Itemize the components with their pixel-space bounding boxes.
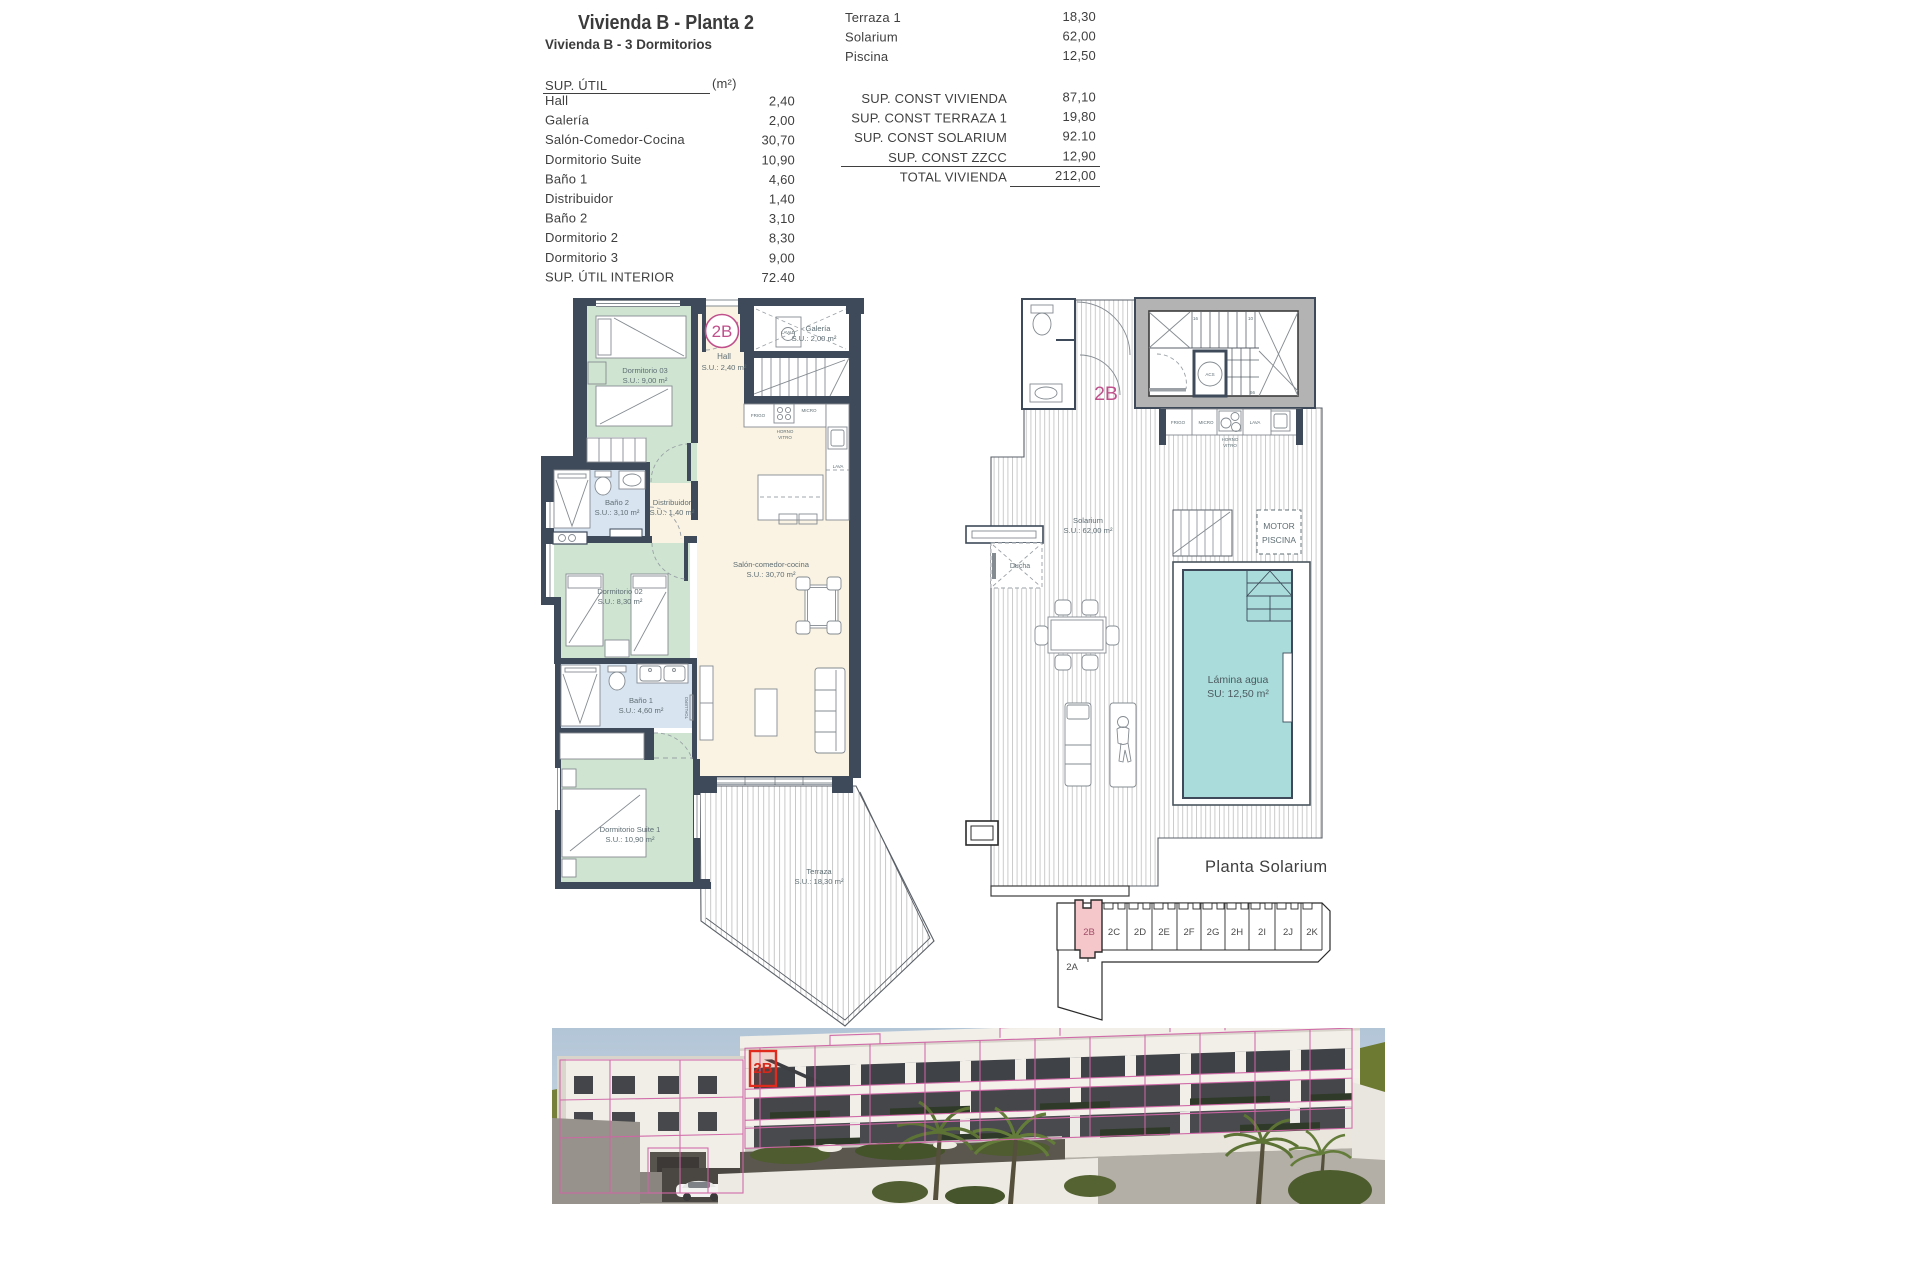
svg-text:Planta Solarium: Planta Solarium: [1205, 858, 1327, 876]
svg-text:2D: 2D: [1134, 927, 1146, 938]
svg-text:Baño 1: Baño 1: [545, 171, 587, 186]
svg-text:2H: 2H: [1231, 927, 1243, 938]
svg-text:10: 10: [1248, 316, 1254, 321]
svg-text:Dormitorio Suite: Dormitorio Suite: [545, 152, 641, 167]
svg-text:TOTAL VIVIENDA: TOTAL VIVIENDA: [900, 169, 1007, 184]
svg-text:TOALLERO: TOALLERO: [684, 696, 689, 719]
svg-text:92.10: 92.10: [1062, 129, 1096, 144]
svg-text:2B: 2B: [1083, 927, 1095, 938]
svg-text:MICRO: MICRO: [802, 408, 817, 413]
svg-text:4,60: 4,60: [769, 172, 795, 187]
svg-text:Distribuidor: Distribuidor: [653, 498, 692, 507]
svg-text:SUP. ÚTIL: SUP. ÚTIL: [545, 78, 607, 93]
svg-text:S.U.: 30,70 m²: S.U.: 30,70 m²: [747, 570, 796, 579]
svg-text:Distribuidor: Distribuidor: [545, 191, 614, 206]
svg-text:12,50: 12,50: [1062, 48, 1096, 63]
svg-text:Hall: Hall: [545, 93, 568, 108]
svg-text:Baño 1: Baño 1: [629, 696, 653, 705]
svg-text:S.U.: 8,30 m²: S.U.: 8,30 m²: [598, 597, 643, 606]
svg-text:FRIGO: FRIGO: [1171, 420, 1186, 425]
svg-text:18,30: 18,30: [1062, 9, 1096, 24]
svg-text:12,90: 12,90: [1062, 148, 1096, 163]
svg-text:Baño 2: Baño 2: [545, 211, 587, 226]
svg-text:FRIGO: FRIGO: [751, 413, 766, 418]
svg-text:2,40: 2,40: [769, 94, 795, 109]
svg-text:PISCINA: PISCINA: [1262, 535, 1296, 545]
svg-text:Lámina agua: Lámina agua: [1208, 674, 1269, 686]
svg-text:Dormitorio 02: Dormitorio 02: [597, 587, 643, 596]
svg-text:66: 66: [1250, 390, 1256, 395]
svg-text:LAVA: LAVA: [1250, 420, 1261, 425]
svg-text:9,00: 9,00: [769, 250, 795, 265]
svg-text:Hall: Hall: [717, 352, 731, 361]
svg-text:87,10: 87,10: [1062, 90, 1096, 105]
svg-text:S.U.: 3,10 m²: S.U.: 3,10 m²: [595, 508, 640, 517]
svg-text:2A: 2A: [1066, 962, 1078, 973]
svg-text:HORNO: HORNO: [1222, 437, 1239, 442]
svg-text:VITRO: VITRO: [778, 435, 792, 440]
svg-text:S.U.: 2,00 m²: S.U.: 2,00 m²: [792, 334, 837, 343]
svg-text:Dormitorio Suite 1: Dormitorio Suite 1: [600, 825, 661, 834]
svg-text:HORNO: HORNO: [777, 429, 794, 434]
svg-text:SUP. CONST ZZCC: SUP. CONST ZZCC: [888, 150, 1007, 165]
svg-text:SUP. ÚTIL INTERIOR: SUP. ÚTIL INTERIOR: [545, 269, 674, 284]
svg-text:1,40: 1,40: [769, 192, 795, 207]
svg-text:10,90: 10,90: [761, 152, 795, 167]
svg-text:2I: 2I: [1258, 927, 1266, 938]
svg-text:Galería: Galería: [545, 113, 590, 128]
svg-text:2B: 2B: [753, 1060, 772, 1077]
svg-text:212,00: 212,00: [1055, 168, 1096, 183]
svg-text:2G: 2G: [1207, 927, 1220, 938]
svg-text:2K: 2K: [1306, 927, 1318, 938]
svg-text:SUP. CONST TERRAZA 1: SUP. CONST TERRAZA 1: [851, 111, 1007, 126]
svg-text:Terraza: Terraza: [806, 867, 832, 876]
svg-text:Dormitorio 3: Dormitorio 3: [545, 250, 618, 265]
svg-text:62,00: 62,00: [1062, 29, 1096, 44]
svg-text:2B: 2B: [1094, 383, 1118, 405]
svg-text:S.U.: 18,30 m²: S.U.: 18,30 m²: [795, 877, 844, 886]
svg-text:MOTOR: MOTOR: [1263, 521, 1294, 531]
svg-text:SU: 12,50 m²: SU: 12,50 m²: [1207, 688, 1269, 700]
svg-text:Dormitorio 2: Dormitorio 2: [545, 230, 618, 245]
svg-text:2F: 2F: [1183, 927, 1194, 938]
svg-text:MICRO: MICRO: [1199, 420, 1214, 425]
svg-text:2,00: 2,00: [769, 113, 795, 128]
svg-text:Solarium: Solarium: [845, 30, 898, 45]
svg-text:Piscina: Piscina: [845, 49, 889, 64]
svg-text:S.U.: 4,60 m²: S.U.: 4,60 m²: [619, 706, 664, 715]
svg-text:30,70: 30,70: [761, 133, 795, 148]
svg-text:3,10: 3,10: [769, 211, 795, 226]
svg-text:2B: 2B: [712, 322, 733, 341]
svg-text:Vivienda B - 3 Dormitorios: Vivienda B - 3 Dormitorios: [545, 36, 712, 52]
svg-text:Galería: Galería: [806, 324, 832, 333]
svg-text:72.40: 72.40: [761, 270, 795, 285]
svg-text:S.U.: 62,00 m²: S.U.: 62,00 m²: [1064, 526, 1113, 535]
svg-text:S.U.: 10,90 m²: S.U.: 10,90 m²: [606, 835, 655, 844]
svg-text:Dormitorio 03: Dormitorio 03: [622, 366, 668, 375]
svg-text:ACS: ACS: [1205, 372, 1214, 377]
svg-text:2J: 2J: [1283, 927, 1293, 938]
svg-text:Salón-Comedor-Cocina: Salón-Comedor-Cocina: [545, 132, 685, 147]
svg-text:S.U.: 9,00 m²: S.U.: 9,00 m²: [623, 376, 668, 385]
svg-text:S.U.: 2,40 m²: S.U.: 2,40 m²: [702, 363, 747, 372]
svg-text:SUP. CONST SOLARIUM: SUP. CONST SOLARIUM: [854, 130, 1007, 145]
svg-text:SUP. CONST VIVIENDA: SUP. CONST VIVIENDA: [861, 91, 1007, 106]
svg-text:2C: 2C: [1108, 927, 1120, 938]
svg-text:Baño 2: Baño 2: [605, 498, 629, 507]
svg-text:16: 16: [1193, 316, 1199, 321]
svg-text:Salón-comedor-cocina: Salón-comedor-cocina: [733, 560, 810, 569]
svg-text:8,30: 8,30: [769, 231, 795, 246]
svg-text:Ducha: Ducha: [1010, 563, 1030, 570]
svg-text:2E: 2E: [1158, 927, 1170, 938]
svg-text:(m²): (m²): [712, 76, 737, 91]
svg-text:Terraza 1: Terraza 1: [845, 10, 901, 25]
svg-text:S.U.: 1,40 m²: S.U.: 1,40 m²: [650, 508, 695, 517]
svg-text:Solarium: Solarium: [1073, 516, 1103, 525]
svg-text:LAVA: LAVA: [833, 464, 844, 469]
svg-text:Vivienda B - Planta 2: Vivienda B - Planta 2: [578, 12, 754, 34]
svg-text:VITRO: VITRO: [1223, 443, 1237, 448]
svg-text:19,80: 19,80: [1062, 109, 1096, 124]
